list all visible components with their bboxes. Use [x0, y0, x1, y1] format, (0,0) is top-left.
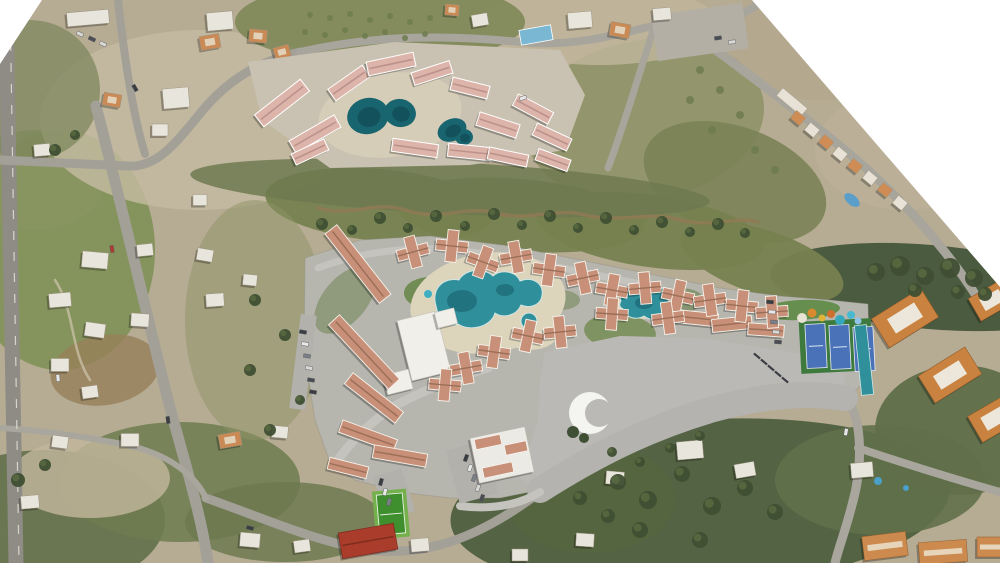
existing-resort: [248, 42, 585, 173]
satellite-site-plan-svg: [0, 0, 1000, 563]
aerial-master-plan-map: [0, 0, 1000, 563]
